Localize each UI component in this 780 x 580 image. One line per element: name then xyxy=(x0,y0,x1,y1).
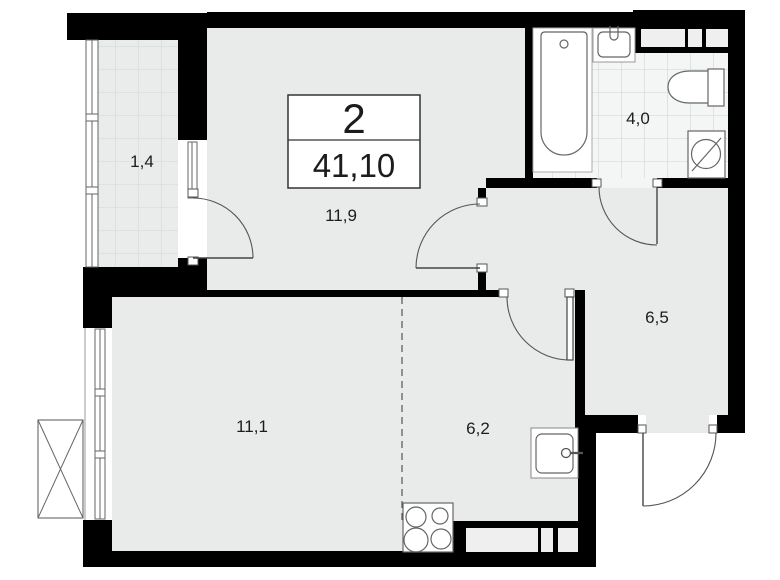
toilet-tank xyxy=(708,69,724,106)
wall-segment xyxy=(178,40,207,140)
wall-segment xyxy=(728,10,745,433)
bedroom-kitchen-floor xyxy=(112,290,585,551)
bedroom-window xyxy=(83,328,112,520)
door-leaf xyxy=(567,297,573,360)
room-label-living: 11,9 xyxy=(325,206,357,225)
floor-plan-drawing: 2 41,10 1,4 11,9 4,0 6,5 11,1 6,2 xyxy=(0,0,780,580)
wall-segment xyxy=(83,551,460,567)
door-jamb xyxy=(709,425,717,433)
room-label-hallway: 6,5 xyxy=(645,308,669,327)
wall-niche xyxy=(541,528,553,552)
room-count-label: 2 xyxy=(342,95,365,142)
bathtub-icon xyxy=(533,28,592,172)
room-label-bedroom: 11,1 xyxy=(236,417,268,436)
wall-segment xyxy=(657,178,728,188)
room-label-balcony: 1,4 xyxy=(130,152,154,171)
stove-icon xyxy=(403,503,453,552)
toilet-bowl xyxy=(668,71,709,103)
door-jamb xyxy=(477,198,487,206)
wall-segment xyxy=(478,188,486,198)
wall-segment xyxy=(486,178,597,188)
door-jamb xyxy=(499,289,508,297)
door-opening xyxy=(646,415,709,433)
wall-segment xyxy=(525,28,533,188)
window-transom xyxy=(95,389,105,396)
door-opening xyxy=(597,178,657,188)
wall-segment xyxy=(578,433,596,553)
wall-niche xyxy=(466,528,538,552)
wall-segment xyxy=(575,415,638,433)
door-jamb xyxy=(565,289,574,297)
exterior-unit-icon xyxy=(38,420,83,518)
washing-machine-icon xyxy=(688,131,725,178)
toilet-icon xyxy=(668,69,724,106)
door-jamb xyxy=(592,179,601,187)
room-label-kitchen: 6,2 xyxy=(466,419,490,438)
bathtub-drain xyxy=(560,40,568,48)
bathtub-shape xyxy=(541,32,587,155)
entrance-door xyxy=(638,415,717,506)
wall-segment xyxy=(575,290,585,417)
door-jamb xyxy=(188,189,198,197)
door-jamb xyxy=(638,425,646,433)
room-label-bathroom: 4,0 xyxy=(626,109,650,128)
wall-segment xyxy=(478,272,486,292)
vent-shaft xyxy=(688,29,702,47)
vent-shaft xyxy=(641,29,685,47)
window-transom xyxy=(86,114,98,121)
wall-niche xyxy=(558,528,578,552)
balcony-glazing xyxy=(86,40,98,267)
wall-segment xyxy=(207,12,633,28)
wall-segment xyxy=(67,13,207,40)
window-transom xyxy=(95,451,105,458)
door-swing-arc xyxy=(643,433,716,506)
bathroom-sink-icon xyxy=(593,26,635,62)
window-transom xyxy=(86,187,98,194)
sink-faucet-base xyxy=(562,449,571,458)
total-area-label: 41,10 xyxy=(313,147,396,184)
floor-plan: 2 41,10 1,4 11,9 4,0 6,5 11,1 6,2 xyxy=(0,0,780,580)
door-jamb xyxy=(653,179,662,187)
wall-segment xyxy=(83,290,112,328)
kitchen-sink-icon xyxy=(531,428,583,478)
sink-basin xyxy=(598,32,630,57)
title-box: 2 41,10 xyxy=(288,95,420,188)
vent-shaft xyxy=(706,29,728,47)
wall-segment xyxy=(717,415,743,433)
wall-segment xyxy=(112,290,503,297)
